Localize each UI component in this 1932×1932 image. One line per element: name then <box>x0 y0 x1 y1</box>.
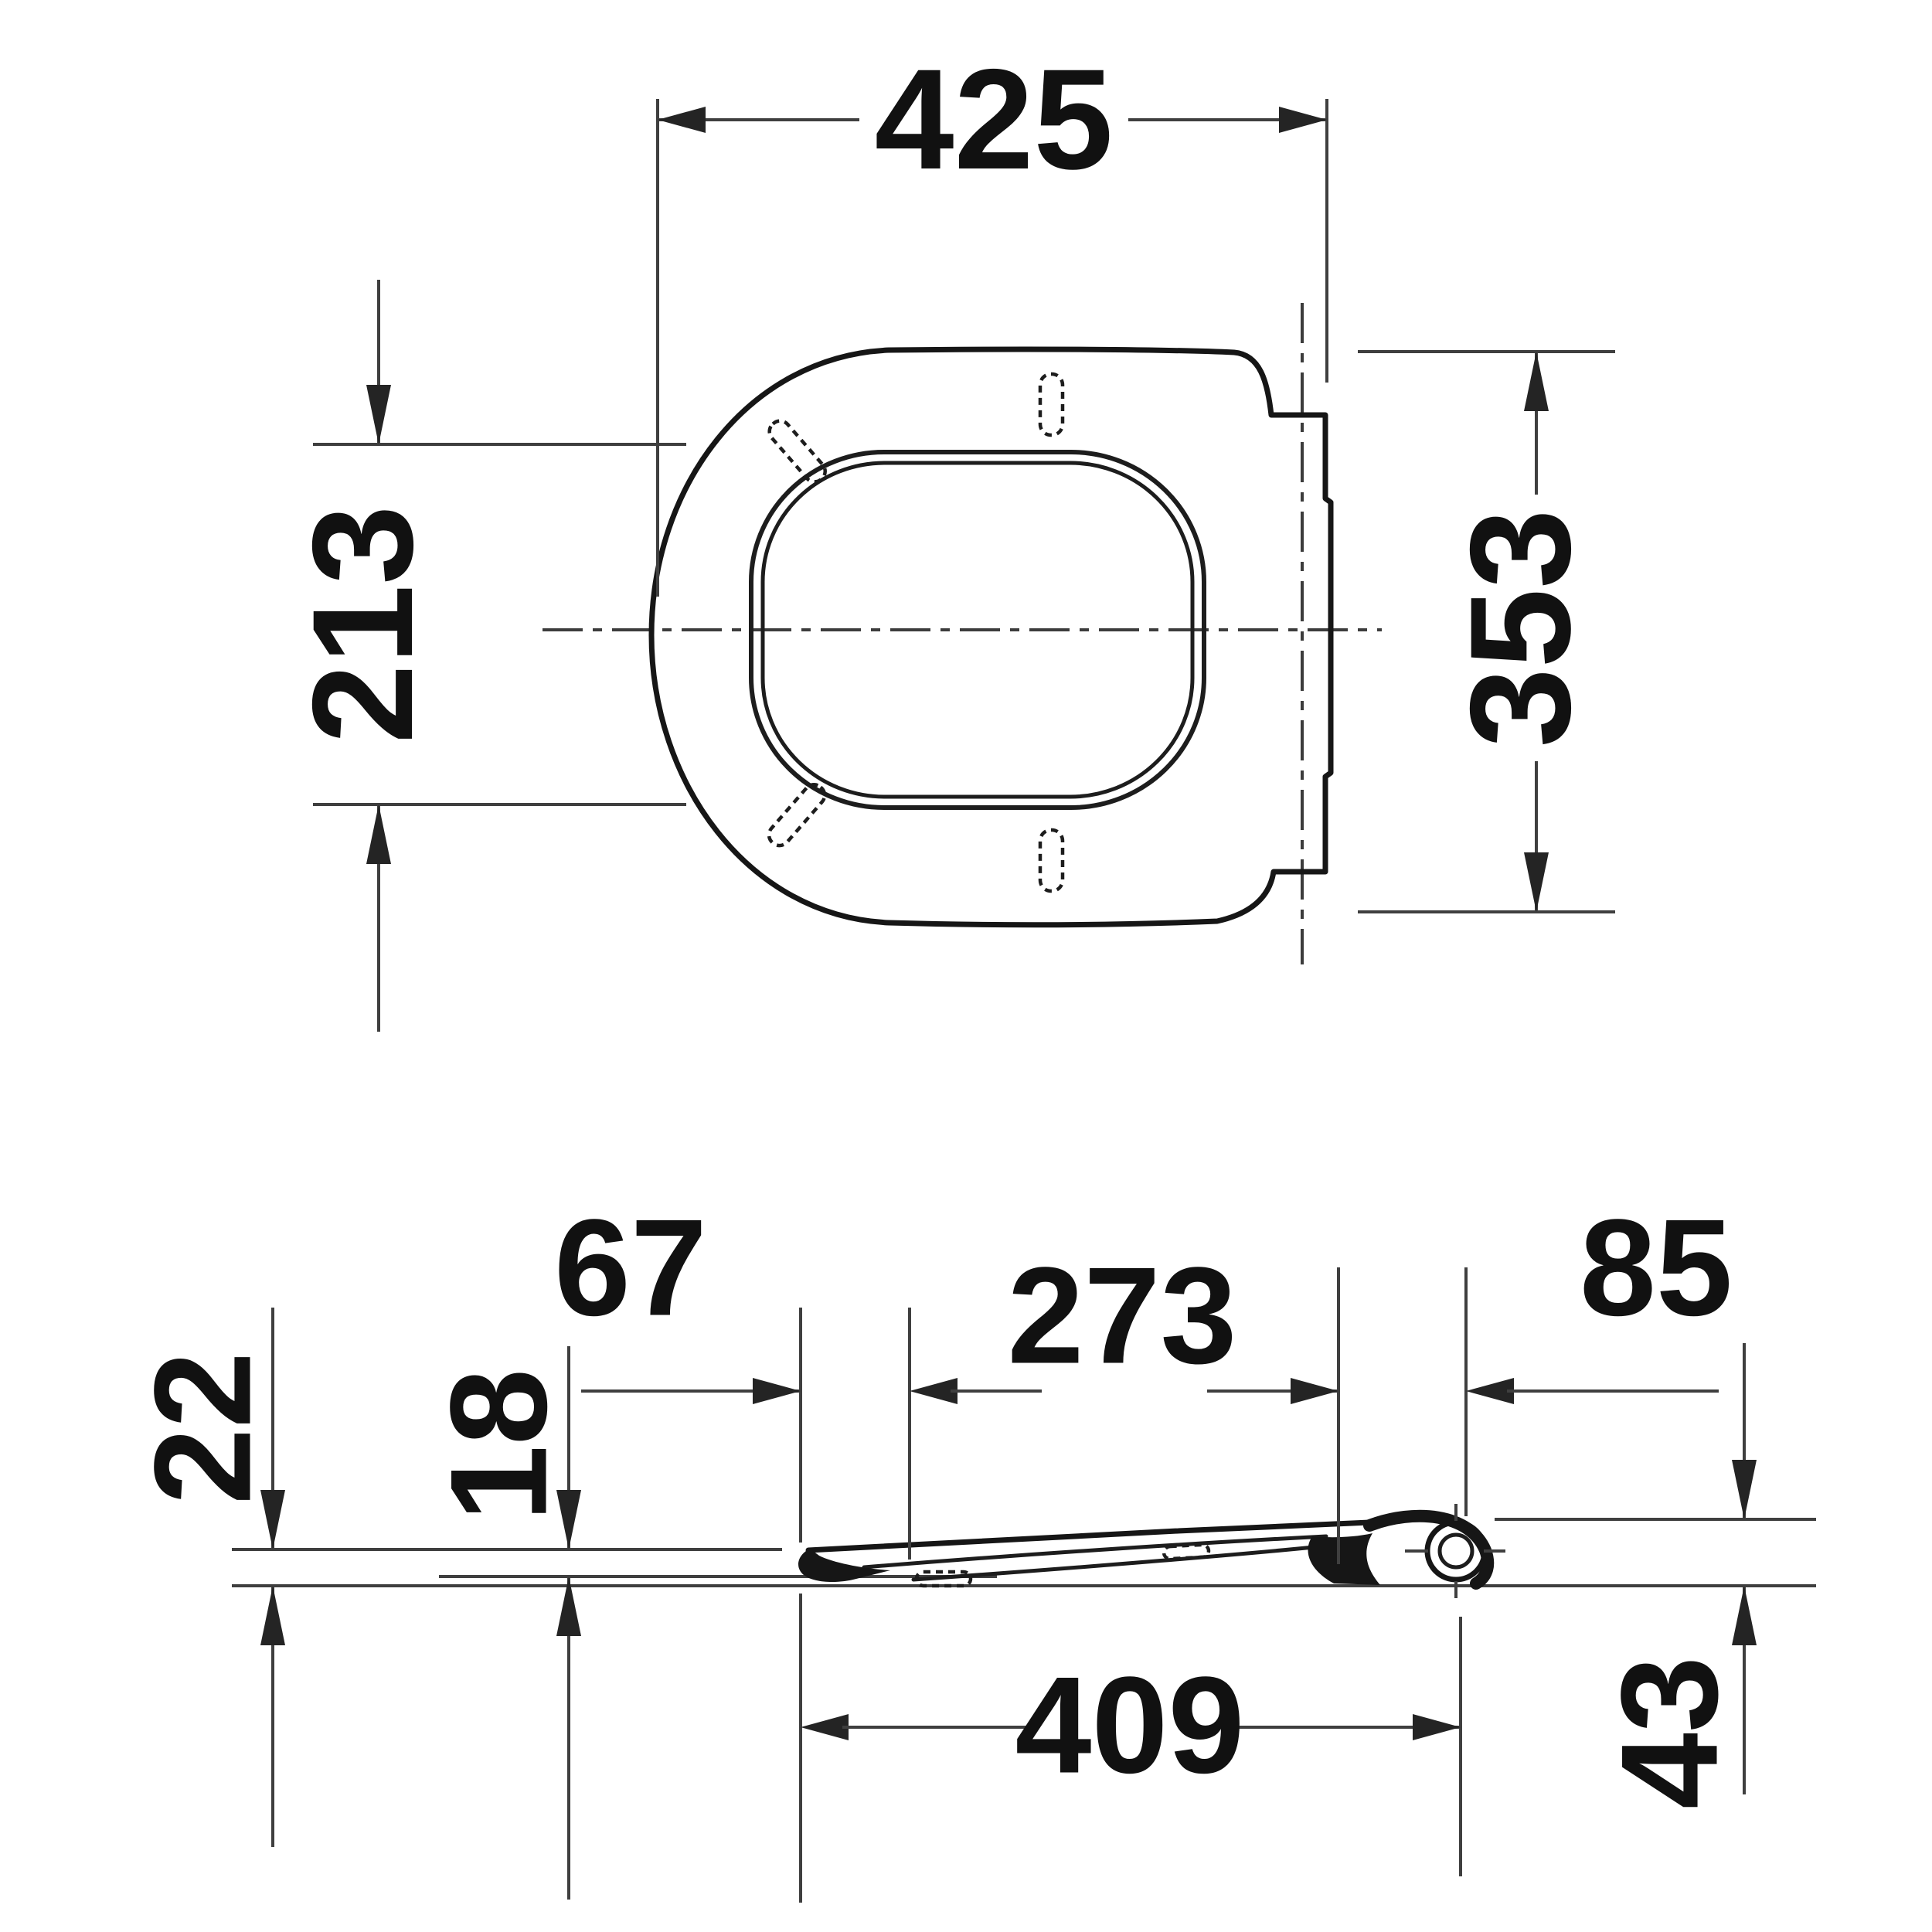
dim-label-425: 425 <box>875 40 1114 199</box>
arrowhead-up <box>260 1586 285 1645</box>
bumper-slot-front-top <box>765 417 829 485</box>
arrowhead-right <box>1413 1714 1461 1740</box>
bumper-mid-hidden <box>1164 1544 1209 1559</box>
hinge-knuckle-inner <box>1440 1535 1472 1567</box>
arrowhead-down <box>366 385 391 444</box>
bumper-slot-bottom <box>1040 830 1063 891</box>
dim-label-18: 18 <box>422 1369 576 1522</box>
dim-label-409: 409 <box>1015 1648 1245 1802</box>
dimension-front-height-22: 22 <box>126 1308 286 1847</box>
dimension-hinge-overhang-85: 85 <box>1466 1191 1733 1405</box>
dimension-hinge-height-43: 43 <box>1593 1343 1757 1809</box>
dim-label-67: 67 <box>554 1191 707 1345</box>
dimension-ring-span-273: 273 <box>910 1239 1338 1405</box>
arrowhead-left <box>801 1714 849 1740</box>
dim-label-85: 85 <box>1580 1191 1733 1345</box>
drawing-canvas: 425 213 353 <box>0 0 1932 1932</box>
arrowhead-right <box>1279 107 1327 133</box>
drawing-sheet: 425 213 353 <box>0 0 1932 1932</box>
arrowhead-up <box>366 804 391 864</box>
arrowhead-up <box>1524 352 1549 411</box>
dimension-lid-overhang-67: 67 <box>554 1191 801 1405</box>
dimension-opening-213: 213 <box>284 280 686 1032</box>
dimension-seat-thickness-18: 18 <box>422 1346 582 1900</box>
arrowhead-right <box>753 1378 801 1404</box>
arrowhead-left <box>910 1378 957 1404</box>
dim-label-43: 43 <box>1593 1656 1747 1809</box>
arrowhead-up <box>1732 1586 1757 1645</box>
bumper-slot-top <box>1040 374 1063 435</box>
dim-label-273: 273 <box>1008 1239 1237 1393</box>
profile-hinge-arm <box>1308 1533 1380 1585</box>
dim-label-353: 353 <box>1441 509 1600 748</box>
dim-label-213: 213 <box>284 505 443 744</box>
profile-ring-bottom <box>913 1547 1314 1580</box>
arrowhead-left <box>1466 1378 1514 1404</box>
dimension-length-409: 409 <box>801 1648 1461 1802</box>
profile-lid-top <box>808 1522 1369 1550</box>
arrowhead-left <box>658 107 706 133</box>
dim-label-22: 22 <box>126 1352 280 1505</box>
arrowhead-right <box>1291 1378 1338 1404</box>
top-view: 425 213 353 <box>284 40 1615 1032</box>
dimension-hinge-width-353: 353 <box>1358 352 1615 912</box>
arrowhead-down <box>1524 852 1549 912</box>
side-view: 67 273 85 22 1 <box>126 1191 1817 1903</box>
arrowhead-down <box>1732 1460 1757 1519</box>
hinge-knuckle-outer <box>1427 1522 1485 1580</box>
dimension-width-425: 425 <box>658 40 1327 597</box>
